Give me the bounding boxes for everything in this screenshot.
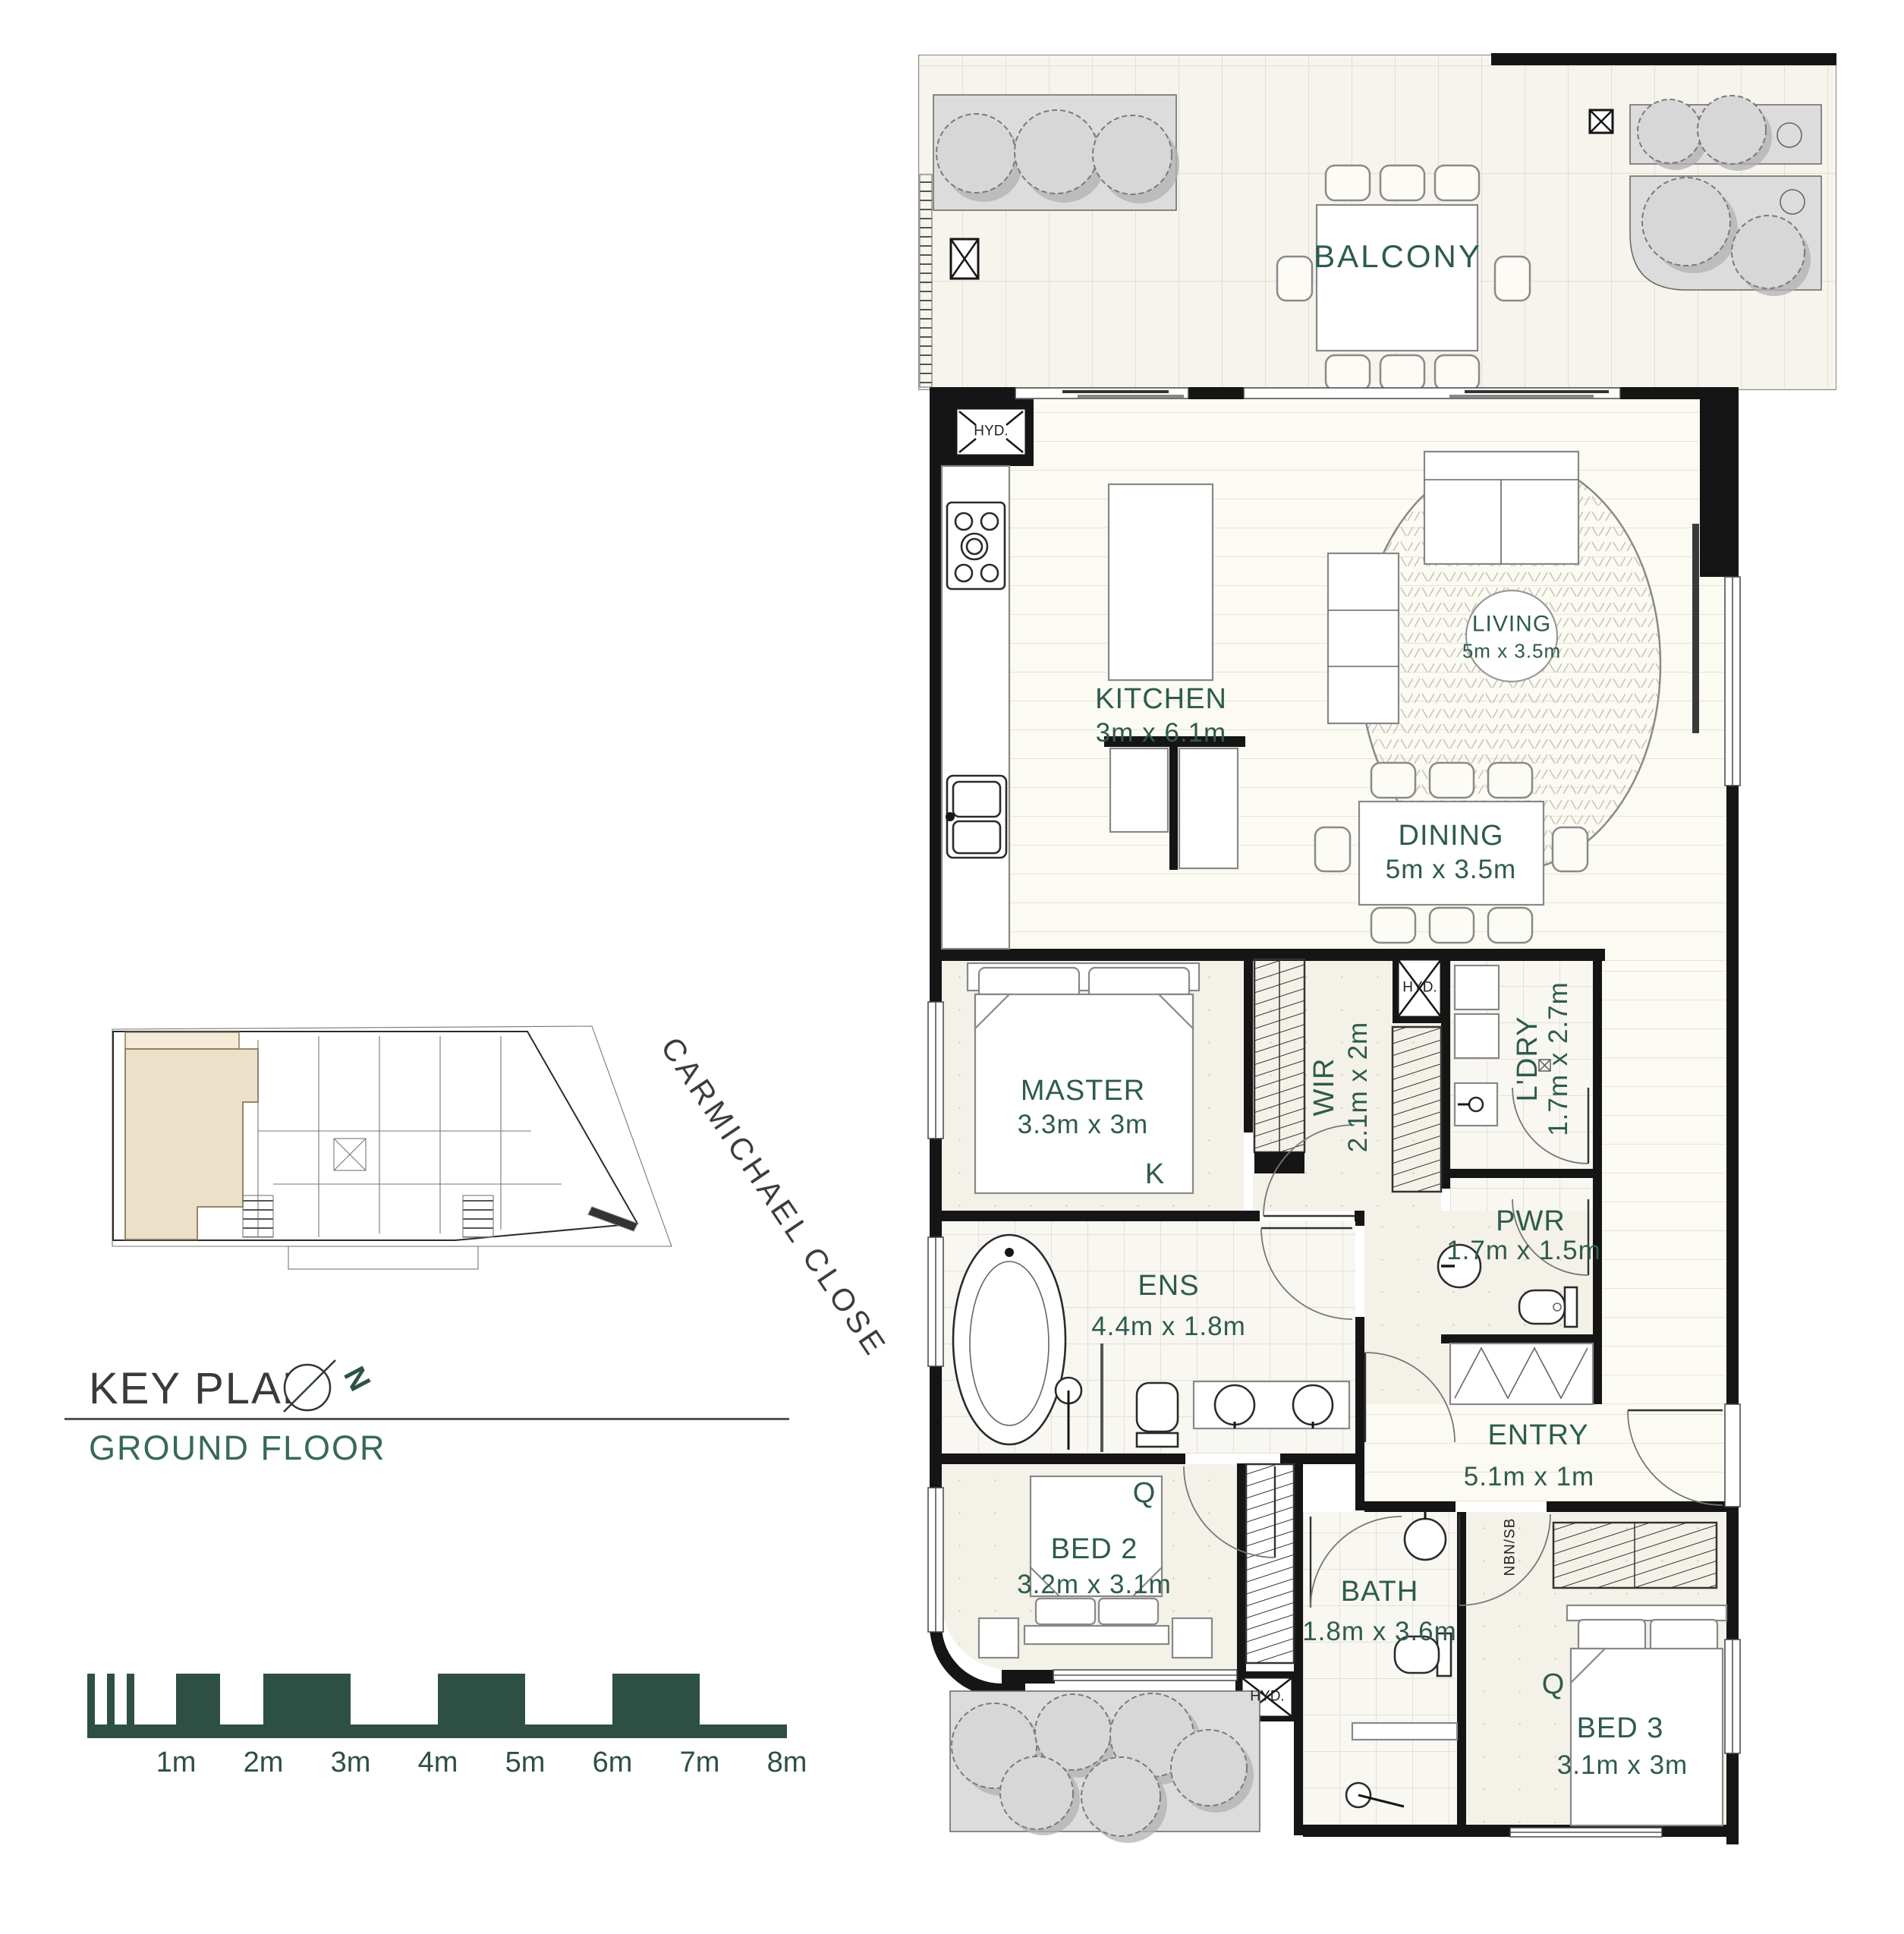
scale-tick	[107, 1674, 115, 1725]
bed-size-queen-bed2: Q	[1133, 1478, 1157, 1510]
ground-floor-subtitle: GROUND FLOOR	[89, 1428, 386, 1468]
scale-baseline	[87, 1725, 787, 1738]
room-dims-bath: 1.8m x 3.6m	[1302, 1617, 1457, 1647]
keyplan-unit-highlight-top	[125, 1032, 239, 1049]
title-rule	[65, 1418, 789, 1420]
scale-block	[176, 1674, 220, 1725]
room-dims-ens: 4.4m x 1.8m	[1091, 1312, 1246, 1342]
scale-label: 1m	[156, 1747, 197, 1779]
room-dims-pwr: 1.7m x 1.5m	[1446, 1236, 1601, 1266]
scale-bar: 1m 2m 3m 4m 5m 6m 7m 8m	[87, 1674, 816, 1788]
scale-block	[263, 1674, 351, 1725]
scale-tick	[127, 1674, 134, 1725]
room-label-ens: ENS	[1138, 1271, 1199, 1302]
room-label-dining: DINING	[1399, 821, 1504, 852]
scale-block	[612, 1674, 700, 1725]
hyd-marker-wir: HYD.	[1402, 981, 1437, 997]
room-dims-bed3: 3.1m x 3m	[1557, 1751, 1688, 1781]
scale-tick	[87, 1674, 95, 1725]
hyd-marker-kitchen: HYD.	[974, 424, 1008, 440]
scale-label: 6m	[593, 1747, 633, 1779]
tv-console	[1328, 553, 1399, 723]
balcony-sliding-doors	[1015, 388, 1620, 398]
room-dims-wir: 2.1m x 2m	[1344, 1022, 1374, 1152]
nbn-marker: NBN/SB	[1503, 1518, 1519, 1576]
kitchen-island	[1109, 484, 1213, 680]
room-label-living: LIVING	[1472, 612, 1551, 637]
room-dims-master: 3.3m x 3m	[1018, 1110, 1148, 1140]
room-dims-bed2: 3.2m x 3.1m	[1017, 1570, 1172, 1600]
room-label-pwr: PWR	[1496, 1206, 1566, 1238]
keyplan-unit-highlight	[125, 1049, 258, 1239]
room-label-entry: ENTRY	[1487, 1420, 1588, 1452]
room-dims-entry: 5.1m x 1m	[1464, 1463, 1594, 1492]
tv	[1692, 524, 1699, 733]
room-label-bath: BATH	[1341, 1576, 1419, 1608]
room-dims-kitchen: 3m x 6.1m	[1096, 719, 1226, 748]
scale-block	[438, 1674, 525, 1725]
room-label-ldry: L'DRY	[1512, 1016, 1544, 1102]
bed2-robe	[1246, 1464, 1294, 1663]
main-floor-plan: BALCONY LIVING 5m x 3.5m KITCHEN 3m x 6.…	[903, 53, 1840, 1871]
floorplan-page: { "key_plan": { "title": "KEY PLAN", "su…	[0, 0, 1904, 1934]
bed-size-king: K	[1145, 1159, 1165, 1191]
room-dims-dining: 5m x 3.5m	[1386, 855, 1516, 885]
pantry	[1179, 748, 1238, 868]
bed-size-queen-bed3: Q	[1542, 1669, 1566, 1701]
scale-label: 3m	[331, 1747, 371, 1779]
hyd-marker-bath: HYD.	[1250, 1690, 1284, 1706]
bath-fixtures	[1311, 1512, 1457, 1807]
room-dims-living: 5m x 3.5m	[1462, 641, 1561, 663]
room-label-wir: WIR	[1309, 1058, 1341, 1117]
room-label-balcony: BALCONY	[1314, 239, 1482, 274]
room-label-master: MASTER	[1021, 1076, 1145, 1107]
scale-label: 4m	[418, 1747, 458, 1779]
keyplan-internal-lines	[243, 1036, 637, 1237]
room-dims-ldry: 1.7m x 2.7m	[1544, 981, 1574, 1136]
room-label-kitchen: KITCHEN	[1095, 684, 1227, 716]
garden-planter	[950, 1691, 1260, 1843]
scale-label: 8m	[767, 1747, 807, 1779]
room-label-bed3: BED 3	[1577, 1713, 1664, 1745]
compass-north-letter: N	[337, 1362, 372, 1397]
fridge	[1110, 748, 1168, 832]
compass-icon: N	[273, 1351, 372, 1423]
room-label-bed2: BED 2	[1051, 1534, 1138, 1566]
scale-label: 2m	[244, 1747, 284, 1779]
scale-label: 7m	[680, 1747, 720, 1779]
balcony-table-chairs	[1277, 165, 1530, 390]
scale-label: 5m	[505, 1747, 546, 1779]
